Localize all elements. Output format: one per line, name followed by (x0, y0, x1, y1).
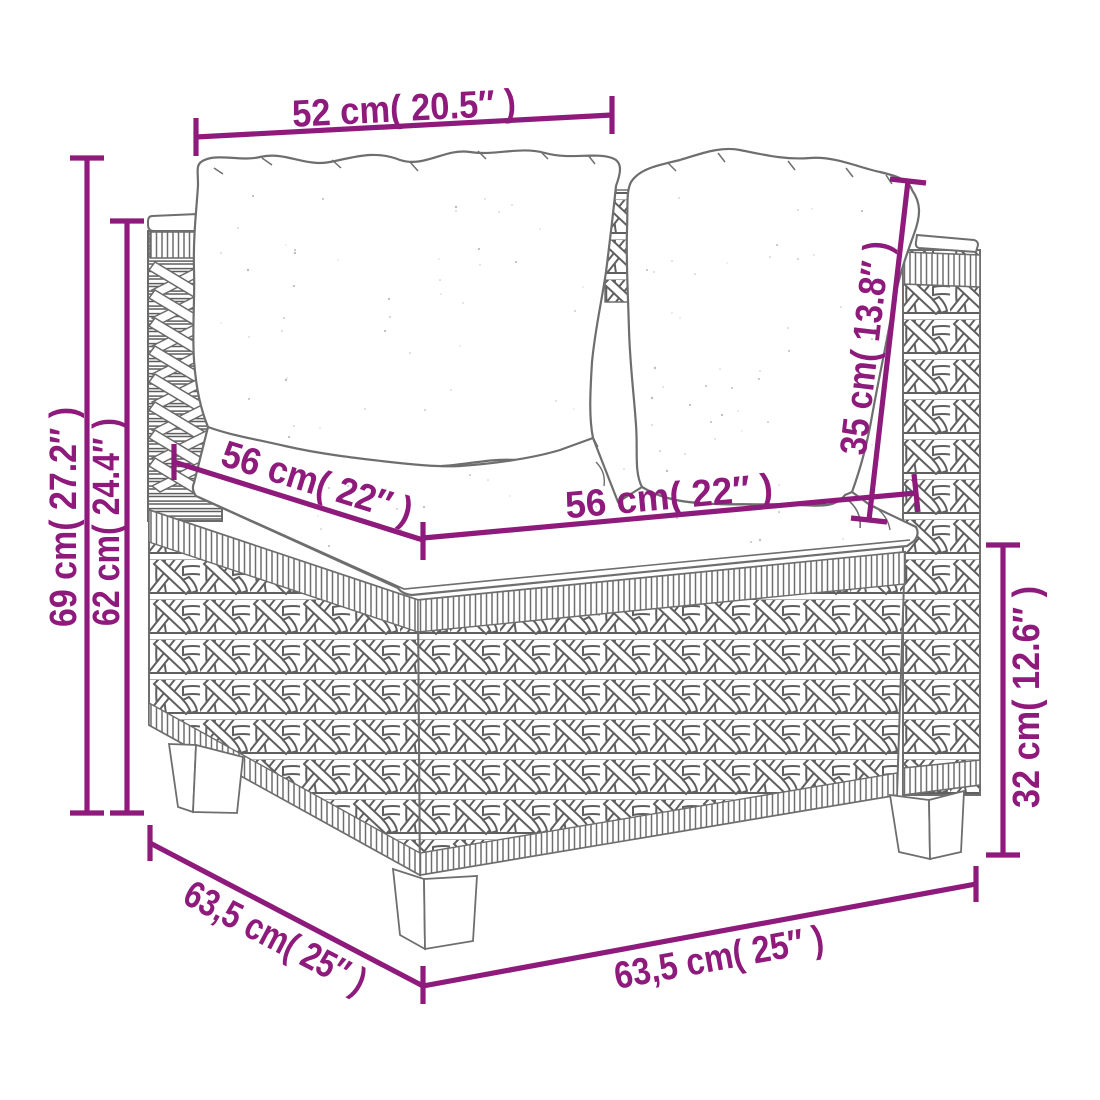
svg-text:69 cm( 27.2″ ): 69 cm( 27.2″ ) (43, 407, 85, 627)
svg-text:62 cm( 24.4″ ): 62 cm( 24.4″ ) (86, 418, 128, 626)
svg-text:32 cm( 12.6″ ): 32 cm( 12.6″ ) (1006, 586, 1048, 808)
